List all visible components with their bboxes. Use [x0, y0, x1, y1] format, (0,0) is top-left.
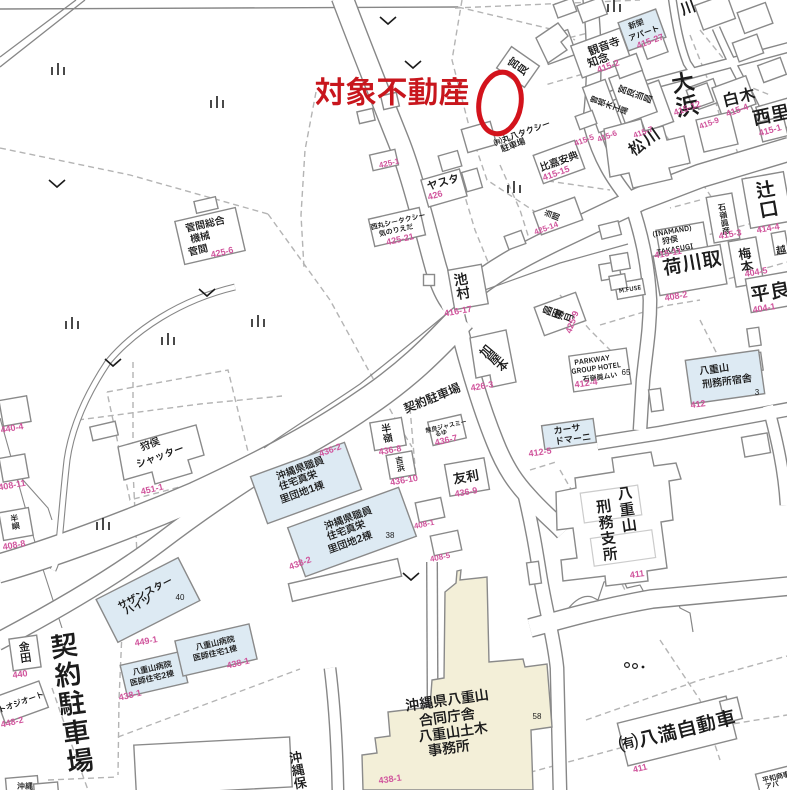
svg-text:40: 40	[176, 593, 185, 602]
svg-text:65: 65	[622, 368, 631, 377]
svg-text:412: 412	[690, 398, 706, 410]
svg-text:411: 411	[629, 568, 645, 580]
svg-text:440: 440	[12, 668, 28, 680]
svg-text:3: 3	[755, 388, 760, 397]
svg-text:38: 38	[386, 531, 395, 540]
svg-text:58: 58	[533, 712, 542, 721]
